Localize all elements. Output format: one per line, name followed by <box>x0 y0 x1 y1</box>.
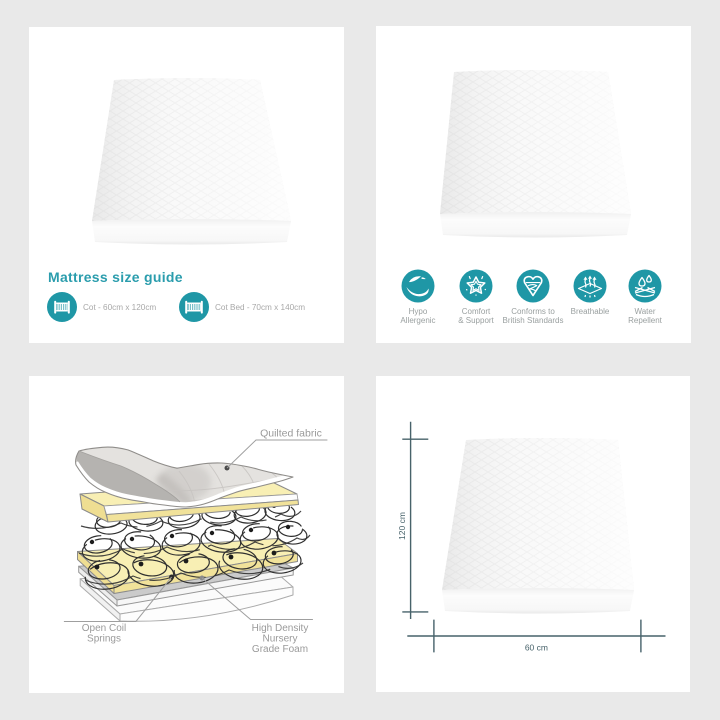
svg-text:Open Coil: Open Coil <box>82 623 126 634</box>
svg-text:Quilted fabric: Quilted fabric <box>260 428 322 440</box>
svg-text:High Density: High Density <box>252 623 309 634</box>
svg-text:60 cm: 60 cm <box>525 643 548 653</box>
svg-text:Springs: Springs <box>87 634 121 645</box>
svg-text:Grade Foam: Grade Foam <box>252 644 308 655</box>
svg-text:120 cm: 120 cm <box>397 512 407 540</box>
svg-text:Nursery: Nursery <box>262 634 297 645</box>
